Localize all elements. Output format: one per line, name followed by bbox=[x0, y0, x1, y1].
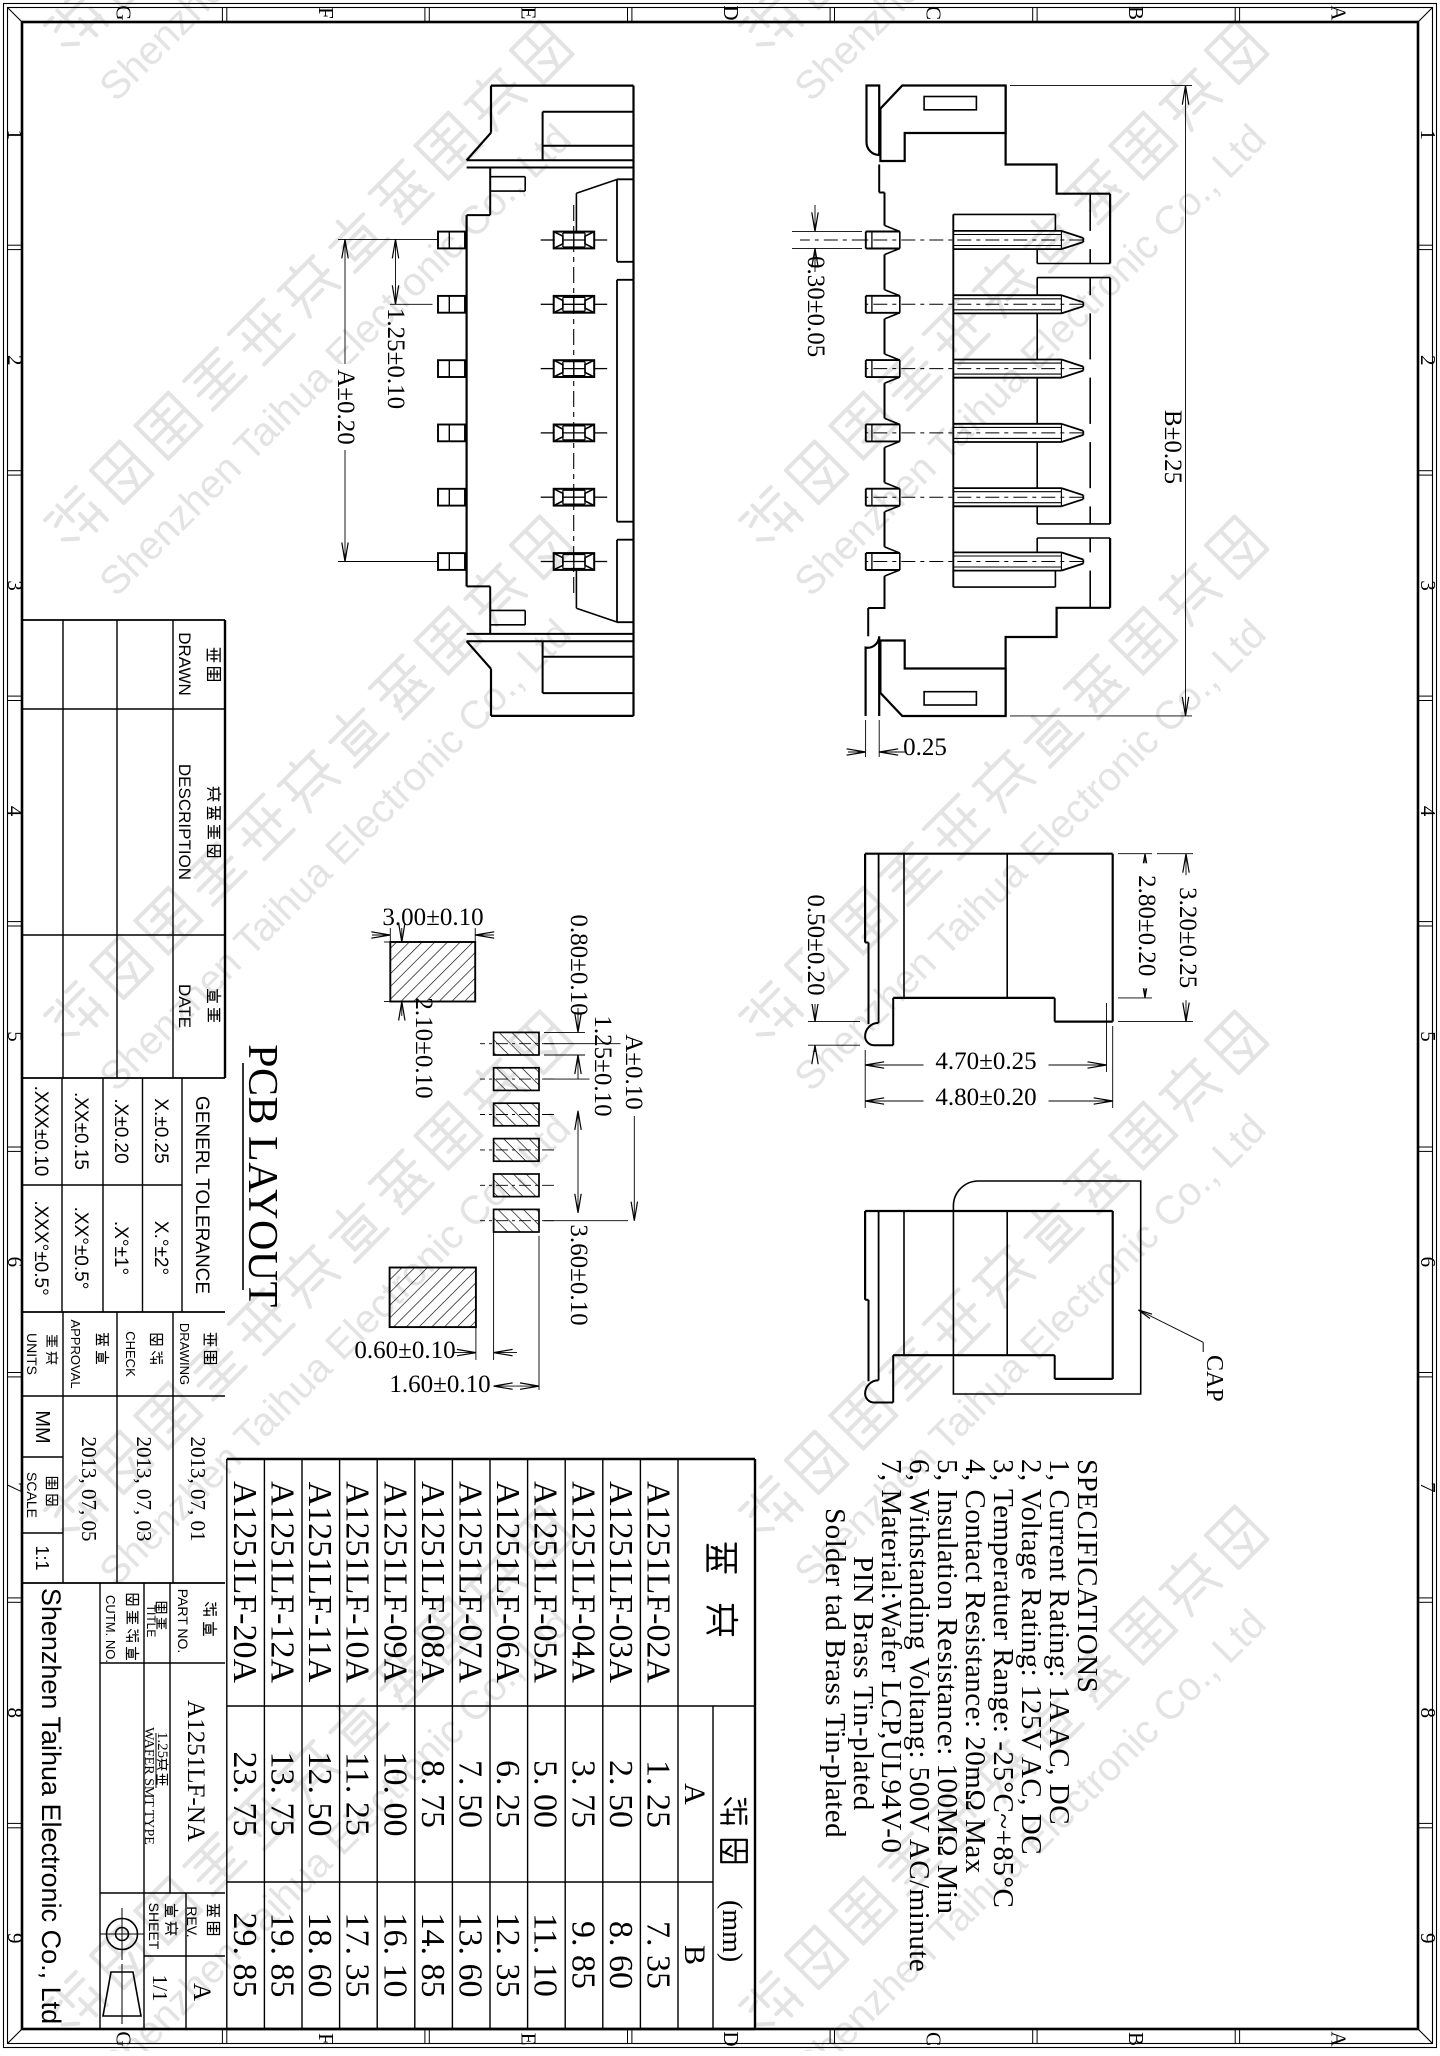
svg-text:.XX±0.15: .XX±0.15 bbox=[70, 1092, 91, 1170]
svg-text:8. 75: 8. 75 bbox=[414, 1760, 451, 1828]
svg-text:18. 60: 18. 60 bbox=[301, 1913, 338, 1998]
svg-text:3: 3 bbox=[1416, 580, 1440, 591]
svg-text:A1251LF-10A: A1251LF-10A bbox=[339, 1481, 376, 1684]
svg-text:5: 5 bbox=[1416, 1031, 1440, 1042]
svg-text:8. 60: 8. 60 bbox=[602, 1921, 639, 1989]
svg-text:1.25±0.10: 1.25±0.10 bbox=[589, 1015, 616, 1116]
svg-text:0.25: 0.25 bbox=[903, 734, 947, 761]
svg-text:A1251LF-02A: A1251LF-02A bbox=[640, 1481, 677, 1684]
svg-text:2. 50: 2. 50 bbox=[602, 1760, 639, 1828]
svg-text:19. 85: 19. 85 bbox=[264, 1913, 301, 1998]
svg-text:E: E bbox=[516, 2033, 540, 2046]
svg-text:F: F bbox=[314, 2033, 338, 2045]
svg-text:APPROVAL: APPROVAL bbox=[68, 1319, 83, 1388]
svg-text:3.20±0.25: 3.20±0.25 bbox=[1174, 887, 1201, 988]
svg-text:11. 25: 11. 25 bbox=[339, 1752, 376, 1836]
svg-text:3. 75: 3. 75 bbox=[564, 1760, 601, 1828]
svg-text:A1251LF-NA: A1251LF-NA bbox=[182, 1700, 209, 1842]
svg-text:G: G bbox=[111, 2031, 135, 2046]
svg-text:SHEET: SHEET bbox=[146, 1903, 162, 1950]
svg-text:0.60±0.10: 0.60±0.10 bbox=[354, 1337, 455, 1364]
svg-text:DATE: DATE bbox=[175, 984, 194, 1028]
svg-text:3: 3 bbox=[3, 580, 27, 591]
svg-text:.XX°±0.5°: .XX°±0.5° bbox=[70, 1207, 91, 1290]
svg-text:13. 60: 13. 60 bbox=[452, 1913, 489, 1998]
svg-text:F: F bbox=[314, 7, 338, 19]
svg-text:Shenzhen Taihua Electronic Co.: Shenzhen Taihua Electronic Co., Ltd bbox=[36, 1588, 66, 2024]
svg-text:A1251LF-07A: A1251LF-07A bbox=[452, 1481, 489, 1684]
svg-text:A1251LF-06A: A1251LF-06A bbox=[489, 1481, 526, 1684]
svg-text:D: D bbox=[719, 5, 743, 20]
svg-text:4.80±0.20: 4.80±0.20 bbox=[935, 1084, 1036, 1111]
svg-text:4, Contact Resistance: 20mΩ Ma: 4, Contact Resistance: 20mΩ Max bbox=[959, 1459, 991, 1874]
svg-text:2.80±0.20: 2.80±0.20 bbox=[1133, 875, 1160, 976]
svg-text:3.60±0.10: 3.60±0.10 bbox=[565, 1224, 592, 1325]
svg-text:REV.: REV. bbox=[184, 1906, 200, 1937]
svg-text:4.70±0.25: 4.70±0.25 bbox=[935, 1048, 1036, 1075]
svg-text:0.50±0.20: 0.50±0.20 bbox=[802, 894, 829, 995]
svg-text:9: 9 bbox=[1416, 1933, 1440, 1944]
svg-text:7. 50: 7. 50 bbox=[452, 1760, 489, 1828]
svg-text:B: B bbox=[1124, 6, 1148, 20]
svg-text:2: 2 bbox=[3, 355, 27, 366]
svg-text:CAP: CAP bbox=[1201, 1355, 1227, 1402]
svg-text:7, Material:Wafer LCP,UL94V-0: 7, Material:Wafer LCP,UL94V-0 bbox=[875, 1459, 907, 1853]
svg-text:A1251LF-04A: A1251LF-04A bbox=[564, 1481, 601, 1684]
svg-text:A1251LF-09A: A1251LF-09A bbox=[376, 1481, 413, 1684]
svg-text:DRAWN: DRAWN bbox=[175, 632, 194, 696]
svg-text:0.80±0.10: 0.80±0.10 bbox=[565, 914, 592, 1015]
svg-text:5: 5 bbox=[3, 1031, 27, 1042]
svg-text:A1251LF-11A: A1251LF-11A bbox=[301, 1482, 338, 1683]
svg-text:PIN Brass Tin-plated: PIN Brass Tin-plated bbox=[847, 1556, 879, 1811]
svg-text:4: 4 bbox=[1416, 806, 1440, 817]
svg-text:CUTM. NO.: CUTM. NO. bbox=[103, 1595, 118, 1663]
svg-text:GENERL TOLERANCE: GENERL TOLERANCE bbox=[191, 1096, 212, 1294]
svg-text:A: A bbox=[1327, 2031, 1351, 2047]
svg-text:D: D bbox=[719, 2031, 743, 2046]
svg-text:1.25±0.10: 1.25±0.10 bbox=[382, 308, 409, 409]
svg-text:C: C bbox=[922, 6, 946, 20]
svg-text:(mm): (mm) bbox=[716, 1900, 747, 1962]
svg-text:0.30±0.05: 0.30±0.05 bbox=[802, 256, 829, 357]
svg-text:A1251LF-20A: A1251LF-20A bbox=[226, 1481, 263, 1684]
svg-text:5, Insulation Resistance: 100M: 5, Insulation Resistance: 100MΩ Min bbox=[931, 1459, 963, 1915]
svg-text:23. 75: 23. 75 bbox=[226, 1752, 263, 1837]
svg-text:2013, 07, 03: 2013, 07, 03 bbox=[132, 1437, 156, 1542]
svg-text:12. 35: 12. 35 bbox=[489, 1913, 526, 1998]
svg-text:16. 10: 16. 10 bbox=[376, 1913, 413, 1998]
svg-text:2013, 07, 05: 2013, 07, 05 bbox=[77, 1437, 101, 1542]
svg-text:PART NO.: PART NO. bbox=[175, 1589, 191, 1654]
svg-text:2, Voltage Rating: 125V AC, DC: 2, Voltage Rating: 125V AC, DC bbox=[1015, 1459, 1047, 1855]
svg-text:.X±0.20: .X±0.20 bbox=[110, 1098, 131, 1163]
svg-text:2: 2 bbox=[1416, 355, 1440, 366]
svg-text:G: G bbox=[111, 5, 135, 20]
svg-text:6: 6 bbox=[3, 1257, 27, 1268]
svg-text:B: B bbox=[678, 1945, 711, 1965]
svg-text:DESCRIPTION: DESCRIPTION bbox=[175, 764, 194, 880]
svg-text:8: 8 bbox=[3, 1708, 27, 1719]
svg-text:A±0.20: A±0.20 bbox=[332, 369, 359, 445]
svg-text:A1251LF-03A: A1251LF-03A bbox=[602, 1481, 639, 1684]
svg-text:9. 85: 9. 85 bbox=[564, 1921, 601, 1989]
svg-text:C: C bbox=[922, 2032, 946, 2046]
svg-text:A±0.10: A±0.10 bbox=[620, 1034, 647, 1110]
svg-text:14. 85: 14. 85 bbox=[414, 1913, 451, 1998]
svg-text:A1251LF-05A: A1251LF-05A bbox=[527, 1481, 564, 1684]
svg-text:1. 25: 1. 25 bbox=[640, 1760, 677, 1828]
svg-text:4: 4 bbox=[3, 806, 27, 817]
svg-text:SPECIFICATIONS: SPECIFICATIONS bbox=[1071, 1459, 1103, 1693]
svg-text:E: E bbox=[516, 7, 540, 20]
svg-text:2013, 07, 01: 2013, 07, 01 bbox=[186, 1437, 210, 1542]
svg-text:A: A bbox=[1327, 5, 1351, 21]
svg-text:6, Withstanding Voltang: 500V: 6, Withstanding Voltang: 500V AC/minute bbox=[903, 1459, 935, 1972]
svg-text:CHECK: CHECK bbox=[123, 1331, 138, 1377]
svg-text:1: 1 bbox=[3, 129, 27, 140]
svg-text:12. 50: 12. 50 bbox=[301, 1752, 338, 1837]
svg-text:3, Temperatuer Range: -25°C~+8: 3, Temperatuer Range: -25°C~+85°C bbox=[987, 1459, 1019, 1908]
svg-text:6. 25: 6. 25 bbox=[489, 1760, 526, 1828]
svg-text:1:1: 1:1 bbox=[32, 1545, 52, 1570]
svg-text:B±0.25: B±0.25 bbox=[1159, 410, 1186, 484]
svg-text:1/1: 1/1 bbox=[148, 1975, 172, 2002]
svg-text:UNITS: UNITS bbox=[24, 1333, 40, 1375]
svg-text:9: 9 bbox=[3, 1933, 27, 1944]
svg-text:7. 35: 7. 35 bbox=[640, 1921, 677, 1989]
svg-text:B: B bbox=[1124, 2032, 1148, 2046]
svg-text:13. 75: 13. 75 bbox=[264, 1752, 301, 1837]
svg-text:1: 1 bbox=[1416, 129, 1440, 140]
svg-text:MM: MM bbox=[31, 1410, 53, 1443]
svg-text:8: 8 bbox=[1416, 1708, 1440, 1719]
svg-text:11. 10: 11. 10 bbox=[527, 1913, 564, 1997]
svg-text:PCB LAYOUT: PCB LAYOUT bbox=[239, 1044, 285, 1308]
svg-text:Solder tad Brass Tin-plated: Solder tad Brass Tin-plated bbox=[819, 1508, 851, 1838]
svg-text:17. 35: 17. 35 bbox=[339, 1913, 376, 1998]
svg-text:7: 7 bbox=[1416, 1482, 1440, 1493]
svg-text:5. 00: 5. 00 bbox=[527, 1760, 564, 1828]
svg-text:X.±0.25: X.±0.25 bbox=[150, 1098, 171, 1163]
svg-text:6: 6 bbox=[1416, 1257, 1440, 1268]
svg-text:SCALE: SCALE bbox=[24, 1472, 40, 1518]
svg-text:10. 00: 10. 00 bbox=[376, 1752, 413, 1837]
svg-text:A1251LF-08A: A1251LF-08A bbox=[414, 1481, 451, 1684]
svg-text:.XXX°±0.5°: .XXX°±0.5° bbox=[30, 1200, 51, 1295]
svg-text:.XXX±0.10: .XXX±0.10 bbox=[30, 1086, 51, 1177]
svg-text:TITLE: TITLE bbox=[144, 1605, 158, 1638]
svg-text:1, Current Rating: 1A AC, DC: 1, Current Rating: 1A AC, DC bbox=[1043, 1459, 1075, 1825]
svg-text:3.00±0.10: 3.00±0.10 bbox=[382, 904, 483, 931]
svg-text:A: A bbox=[678, 1783, 711, 1805]
svg-text:1.60±0.10: 1.60±0.10 bbox=[389, 1371, 490, 1398]
svg-text:WAFER SMT TYPE: WAFER SMT TYPE bbox=[141, 1727, 156, 1845]
svg-text:X.°±2°: X.°±2° bbox=[150, 1221, 171, 1275]
svg-text:.X°±1°: .X°±1° bbox=[110, 1221, 131, 1275]
svg-text:DRAWING: DRAWING bbox=[177, 1323, 192, 1385]
svg-text:2.10±0.10: 2.10±0.10 bbox=[410, 997, 437, 1098]
svg-text:A: A bbox=[188, 1983, 215, 2001]
svg-text:29. 85: 29. 85 bbox=[226, 1913, 263, 1998]
svg-text:A1251LF-12A: A1251LF-12A bbox=[264, 1481, 301, 1684]
